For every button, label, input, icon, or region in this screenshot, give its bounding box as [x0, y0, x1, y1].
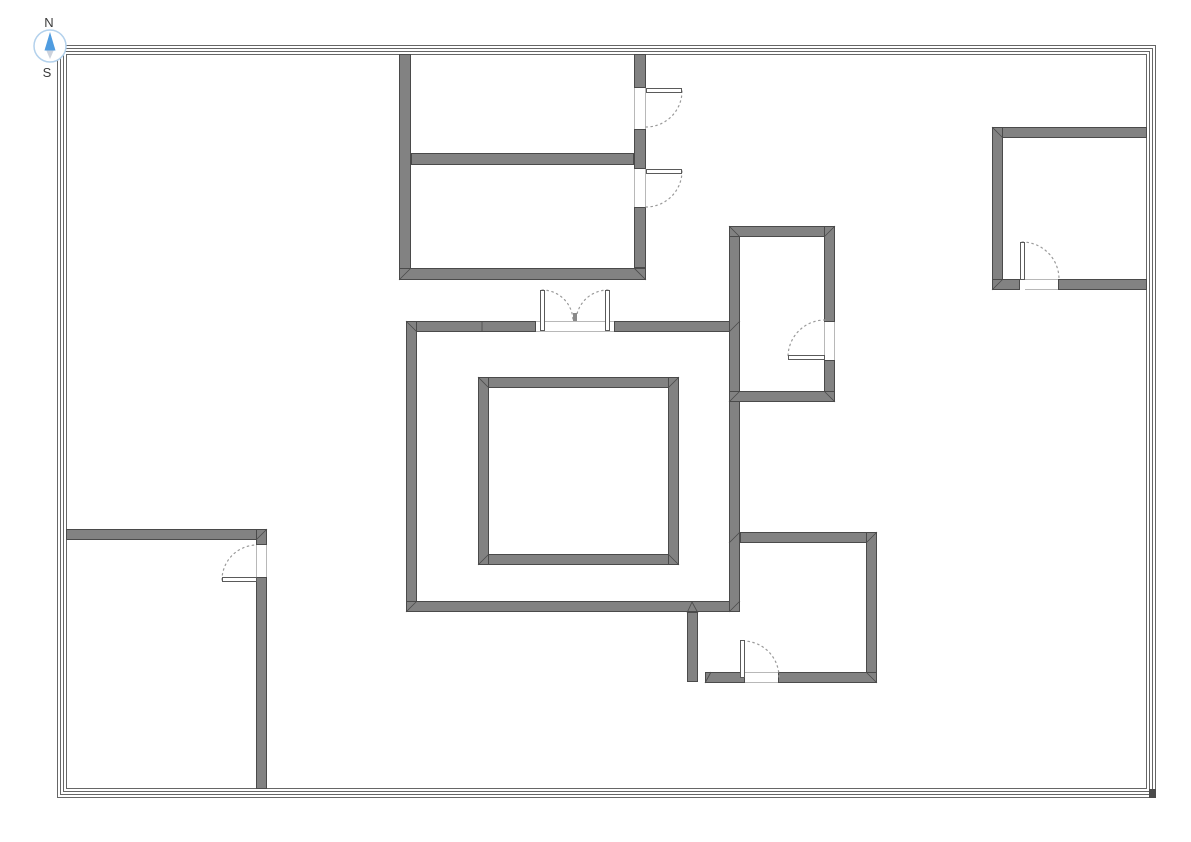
door-opening — [824, 322, 835, 360]
central-room-top-wall-left — [407, 322, 536, 332]
floor-plan: NS — [0, 0, 1191, 842]
inner-square-right-wall — [669, 378, 679, 565]
outer-wall-corner-block — [1149, 789, 1156, 798]
middle-right-room-right-wall-upper — [825, 227, 835, 322]
door-leaf — [741, 641, 745, 678]
door-opening — [1025, 279, 1058, 290]
door-leaf — [647, 89, 682, 93]
bottom-left-room-top-wall — [67, 530, 267, 540]
bottom-left-room-right-wall-upper — [257, 530, 267, 545]
bottom-right-room-bottom-wall — [779, 673, 877, 683]
bottom-right-room-right-wall — [867, 533, 877, 683]
top-right-room-left-wall — [993, 128, 1003, 290]
double-door-center-tick — [573, 313, 577, 321]
door-opening — [536, 321, 614, 332]
top-right-room-bottom-wall-left — [993, 280, 1020, 290]
central-room-right-wall — [730, 227, 740, 612]
door-leaf — [606, 291, 610, 331]
floor-plan-svg: NS — [0, 0, 1191, 842]
bottom-right-room-top-wall — [741, 533, 877, 543]
top-room-bottom-wall — [400, 269, 646, 280]
compass-south-label: S — [43, 65, 52, 80]
inner-square-left-wall — [479, 378, 489, 565]
top-room-right-wall-upper — [635, 55, 646, 88]
door-opening — [745, 672, 778, 683]
bottom-right-room-left-stub-wall — [688, 613, 698, 682]
door-opening — [634, 88, 646, 129]
door-leaf — [1021, 243, 1025, 280]
door-opening — [634, 169, 646, 207]
top-room-divider-wall — [412, 154, 634, 165]
top-right-room-top-wall — [993, 128, 1147, 138]
door-leaf — [223, 578, 257, 582]
door-opening — [256, 545, 267, 577]
central-room-top-wall-right — [615, 322, 740, 332]
top-room-right-wall-lower — [635, 208, 646, 268]
bottom-right-room-bottom-wall-left — [706, 673, 745, 683]
door-leaf — [789, 356, 825, 360]
middle-right-room-top-wall — [730, 227, 835, 237]
door-leaf — [541, 291, 545, 331]
top-right-room-bottom-wall-right — [1059, 280, 1147, 290]
middle-right-room-bottom-wall — [730, 392, 835, 402]
central-room-left-wall — [407, 322, 417, 612]
plan-background — [0, 0, 1191, 842]
top-room-left-wall — [400, 55, 411, 280]
compass-north-label: N — [44, 15, 53, 30]
bottom-left-room-right-wall-lower — [257, 578, 267, 789]
inner-square-bottom-wall — [479, 555, 679, 565]
inner-square-top-wall — [479, 378, 679, 388]
door-leaf — [647, 170, 682, 174]
top-room-right-wall-middle — [635, 130, 646, 169]
